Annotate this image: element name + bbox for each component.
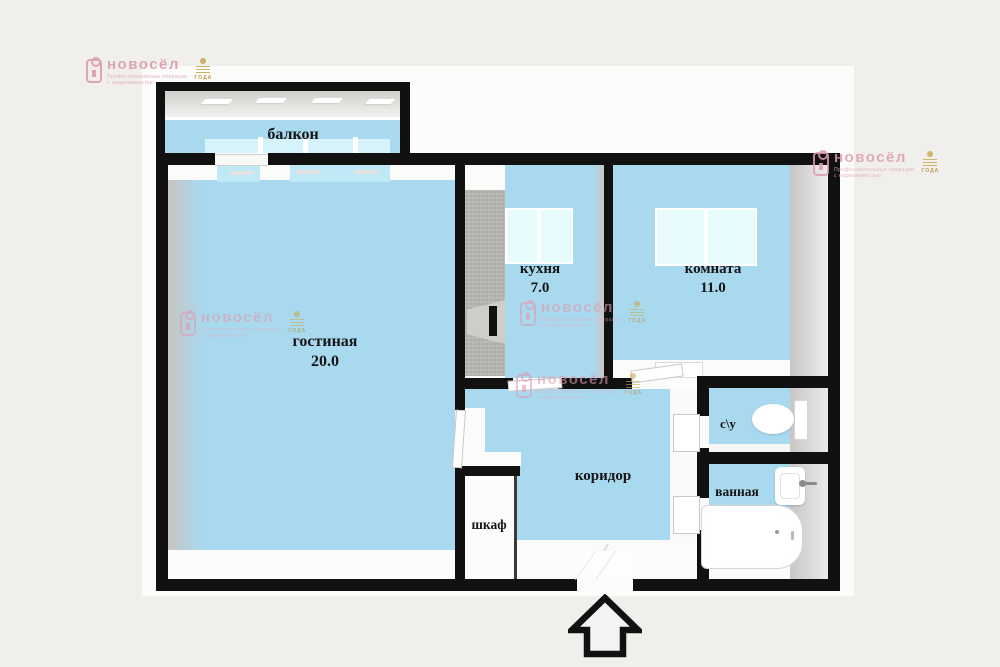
window-frame-tick <box>352 170 380 174</box>
room-name: с\у <box>702 416 754 432</box>
bathtub-icon <box>701 505 803 569</box>
wall-top <box>268 153 828 165</box>
bedroom-wall-shading <box>790 165 828 378</box>
room-living-floor <box>168 165 455 579</box>
wall-corridor-wc <box>697 376 709 416</box>
room-name: коридор <box>555 467 651 486</box>
brand-tagline: Профессиональные операции <box>537 389 618 395</box>
wall-corridor-top <box>455 378 513 389</box>
watermark-text: новосёл Профессиональные операции с недв… <box>107 57 188 86</box>
window-frame-tick <box>311 98 344 103</box>
living-wall-shading <box>168 180 204 550</box>
room-area: 11.0 <box>655 279 771 298</box>
novosel-logo-icon <box>86 59 102 83</box>
brand-tagline: с недвижимостью <box>834 173 915 179</box>
wall-wc-top <box>697 376 828 388</box>
watermark-novosel: новосёл Профессиональные операции с недв… <box>180 310 306 339</box>
door-wc <box>673 414 700 452</box>
wc-bottom-shading <box>709 444 790 452</box>
award-emblem-icon: ГОДА <box>629 301 647 324</box>
kitchen-window-panes <box>505 208 573 264</box>
emblem-lines <box>196 66 210 67</box>
watermark-text: новосёл Профессиональные операции с недв… <box>537 372 618 401</box>
watermark-text: новосёл Профессиональные операции с недв… <box>541 300 622 329</box>
brand-tagline: Профессиональные операции <box>834 167 915 173</box>
label-closet: шкаф <box>463 517 515 534</box>
window-frame-tick <box>228 171 256 175</box>
floorplan-page: { "title": "apartment-floor-plan", "colo… <box>0 0 1000 667</box>
award-text: ГОДА <box>289 328 307 334</box>
room-name: ванная <box>701 484 773 501</box>
award-text: ГОДА <box>922 168 940 174</box>
window-pane <box>708 210 755 264</box>
window-frame-tick <box>365 99 396 104</box>
novosel-logo-icon <box>520 302 536 326</box>
brand-tagline: Профессиональные операции <box>107 74 188 80</box>
label-corridor: коридор <box>555 467 651 486</box>
brand-name: новосёл <box>541 300 622 317</box>
brand-tagline: с недвижимостью <box>537 395 618 401</box>
room-name: кухня <box>482 260 598 279</box>
wall-left <box>156 153 168 591</box>
window-frame-tick <box>255 98 288 103</box>
label-kitchen: кухня 7.0 <box>482 260 598 298</box>
brand-name: новосёл <box>107 57 188 74</box>
brand-tagline: Профессиональные операции <box>201 327 282 333</box>
faucet-lever-icon <box>805 482 817 485</box>
brand-tagline: Профессиональные операции <box>541 317 622 323</box>
room-area: 20.0 <box>260 352 390 372</box>
emblem-mark <box>294 311 300 317</box>
bathtub-overflow-icon <box>791 531 794 540</box>
wall-bottom <box>633 579 828 591</box>
emblem-mark <box>634 301 640 307</box>
room-name: комната <box>655 260 771 279</box>
window-pane <box>507 210 537 262</box>
bedroom-window-panes <box>655 208 757 266</box>
balcony-ceiling <box>165 91 400 117</box>
label-bedroom: комната 11.0 <box>655 260 771 298</box>
label-bath: ванная <box>701 484 773 501</box>
room-name: шкаф <box>463 517 515 534</box>
wall-balcony-right <box>400 82 410 161</box>
label-balcony: балкон <box>233 125 353 145</box>
label-wc: с\у <box>702 416 754 432</box>
watermark-novosel: новосёл Профессиональные операции с недв… <box>520 300 646 329</box>
window-pane <box>657 210 704 264</box>
wall-living-kitchen <box>455 165 465 410</box>
wall-right <box>828 153 840 591</box>
window-frame-tick <box>294 170 322 174</box>
emblem-lines <box>630 309 644 310</box>
award-emblem-icon: ГОДА <box>195 58 213 81</box>
brand-tagline: с недвижимостью <box>541 323 622 329</box>
watermark-novosel: новосёл Профессиональные операции с недв… <box>813 150 939 179</box>
brand-name: новосёл <box>201 310 282 327</box>
emblem-lines <box>923 159 937 160</box>
stove-icon <box>489 306 497 336</box>
brand-tagline: с недвижимостью <box>201 333 282 339</box>
living-bottom-shading <box>168 550 455 579</box>
award-text: ГОДА <box>625 390 643 396</box>
wall-wc-bath <box>697 452 828 464</box>
award-text: ГОДА <box>629 318 647 324</box>
wall-closet-top <box>455 466 520 476</box>
award-emblem-icon: ГОДА <box>922 151 940 174</box>
watermark-novosel: новосёл Профессиональные операции с недв… <box>516 372 642 401</box>
wall-kitchen-bedroom <box>604 165 613 378</box>
award-text: ГОДА <box>195 75 213 81</box>
window-pane <box>541 210 571 262</box>
brand-tagline: с недвижимостью <box>107 80 188 86</box>
emblem-lines <box>290 319 304 320</box>
watermark-text: новосёл Профессиональные операции с недв… <box>201 310 282 339</box>
brand-name: новосёл <box>834 150 915 167</box>
toilet-icon <box>752 404 794 434</box>
emblem-lines <box>626 381 640 382</box>
room-area: 7.0 <box>482 279 598 298</box>
emblem-mark <box>200 58 206 64</box>
bathtub-drain-icon <box>775 530 779 534</box>
award-emblem-icon: ГОДА <box>625 373 643 396</box>
watermark-text: новосёл Профессиональные операции с недв… <box>834 150 915 179</box>
watermark-novosel: новосёл Профессиональные операции с недв… <box>86 57 212 86</box>
window-divider <box>353 137 358 153</box>
novosel-logo-icon <box>516 374 532 398</box>
brand-name: новосёл <box>537 372 618 389</box>
room-name: балкон <box>233 125 353 145</box>
novosel-logo-icon <box>180 312 196 336</box>
emblem-mark <box>630 373 636 379</box>
award-emblem-icon: ГОДА <box>289 311 307 334</box>
wall-balcony-left <box>156 82 165 161</box>
novosel-logo-icon <box>813 152 829 176</box>
closet-shelf <box>455 452 521 466</box>
entrance-arrow-icon <box>568 594 642 658</box>
balcony-door-sill <box>215 154 268 166</box>
wall-bottom <box>156 579 577 591</box>
toilet-tank-icon <box>794 400 808 440</box>
emblem-mark <box>927 151 933 157</box>
window-frame-tick <box>201 99 234 104</box>
balcony-sill-line <box>165 117 400 120</box>
door-bath <box>673 496 700 534</box>
door-entrance <box>577 551 633 580</box>
